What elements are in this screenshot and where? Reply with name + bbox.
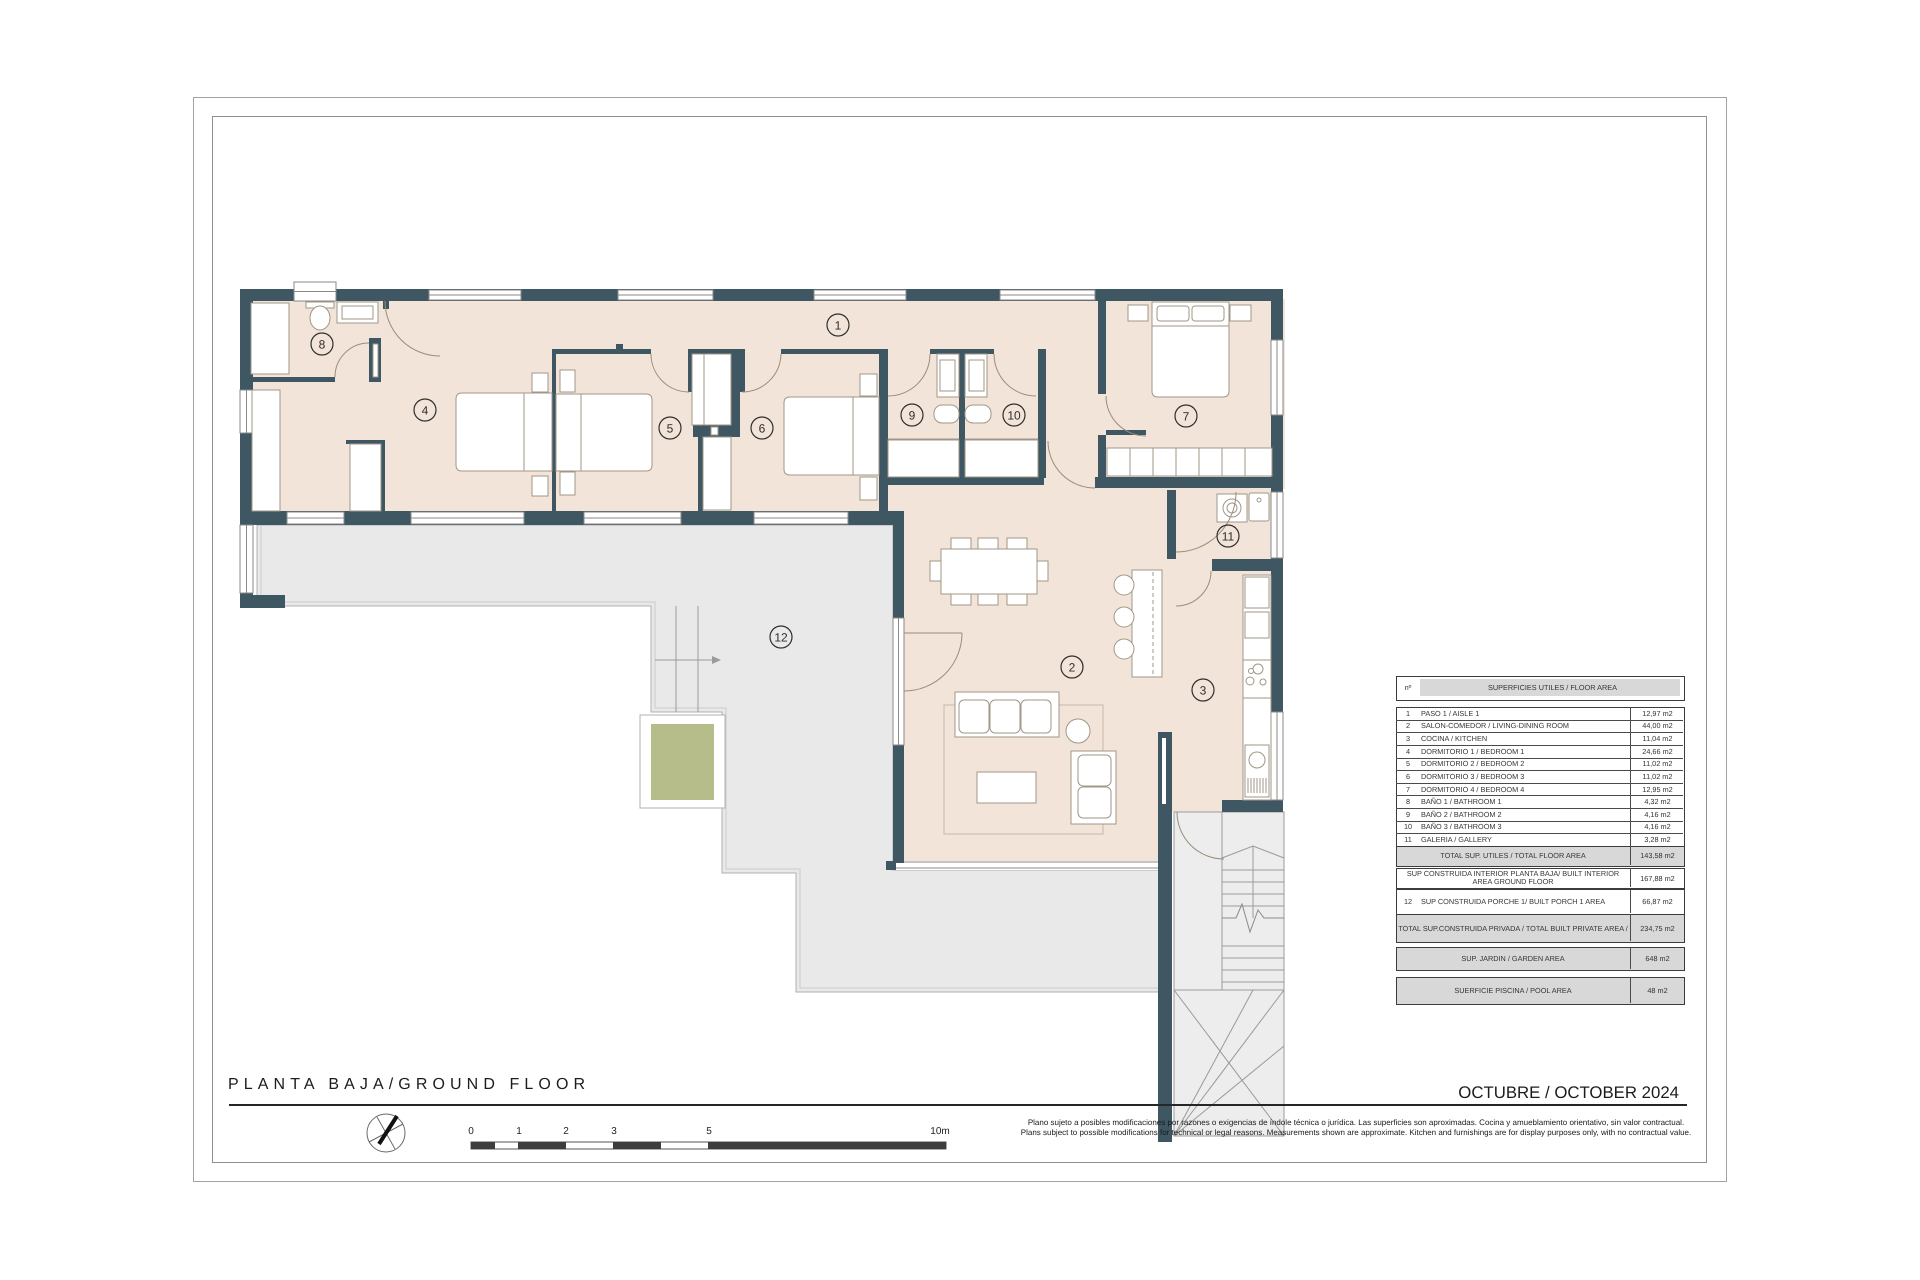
svg-text:9: 9 (909, 409, 916, 423)
svg-text:10m: 10m (930, 1126, 949, 1137)
svg-text:10: 10 (1007, 409, 1021, 423)
svg-text:1: 1 (835, 319, 842, 333)
svg-text:5: 5 (706, 1126, 712, 1137)
svg-text:8: 8 (319, 338, 326, 352)
svg-text:5: 5 (667, 422, 674, 436)
svg-text:11: 11 (1222, 530, 1235, 544)
svg-text:0: 0 (468, 1126, 474, 1137)
svg-text:4: 4 (422, 404, 429, 418)
svg-text:3: 3 (1200, 684, 1207, 698)
svg-text:2: 2 (1069, 661, 1076, 675)
svg-text:7: 7 (1183, 410, 1190, 424)
svg-text:6: 6 (759, 422, 766, 436)
svg-text:12: 12 (774, 631, 788, 645)
svg-text:2: 2 (563, 1126, 569, 1137)
svg-text:3: 3 (611, 1126, 617, 1137)
svg-text:1: 1 (516, 1126, 522, 1137)
